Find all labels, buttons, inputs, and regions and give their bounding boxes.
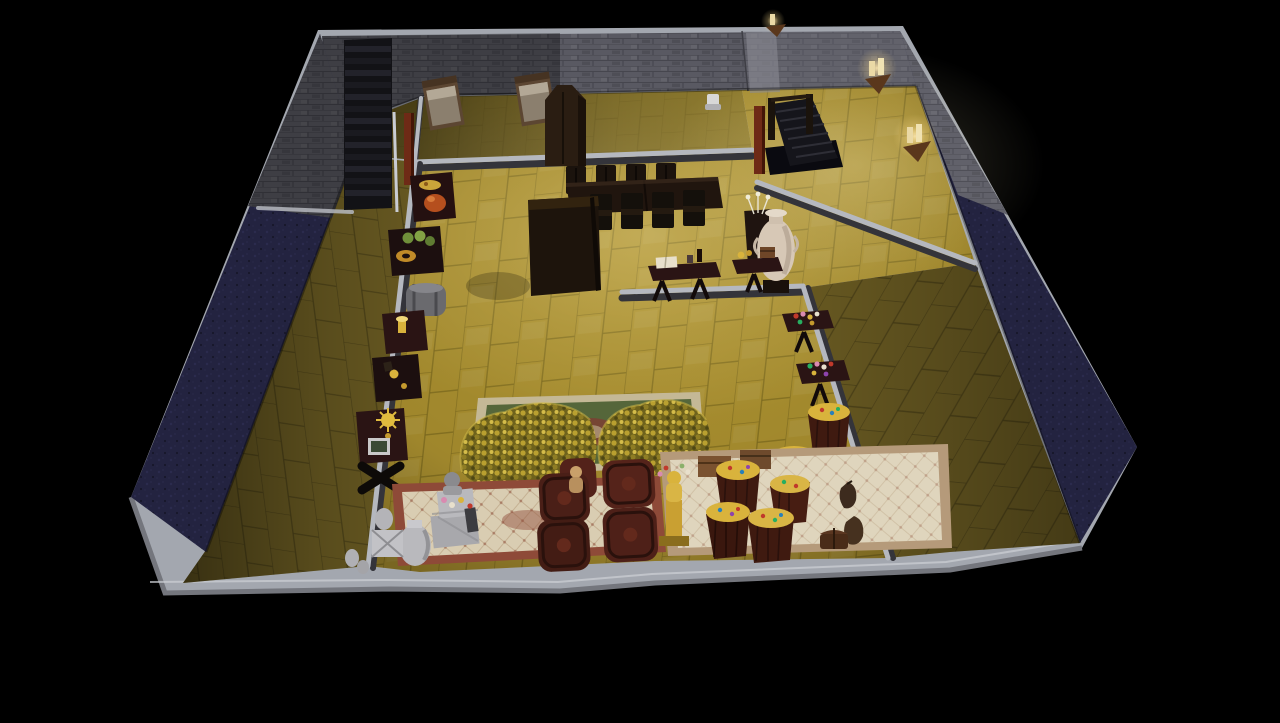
game-viewport <box>0 0 1280 723</box>
bust-shoulders <box>443 486 462 495</box>
candle <box>770 14 775 25</box>
statue-figure-head <box>667 471 681 485</box>
gold-trinket <box>746 250 752 256</box>
wardrobe-side <box>578 95 586 166</box>
cabbage <box>415 231 426 242</box>
gold-barrel <box>706 502 750 559</box>
table-produce[interactable] <box>388 226 444 276</box>
candle <box>907 127 913 143</box>
door-post-shade <box>411 113 414 185</box>
cabbage <box>403 233 414 244</box>
goblet-rim <box>396 316 408 322</box>
candle <box>916 124 922 142</box>
amphora-pedestal <box>763 280 789 293</box>
gold-fill <box>808 403 850 421</box>
tall-cabinet[interactable] <box>528 196 601 296</box>
keg-top <box>409 283 443 293</box>
table-trinkets[interactable] <box>372 354 422 402</box>
door-frame-stairwell[interactable] <box>754 106 765 174</box>
wreath-hole <box>402 254 410 259</box>
gold-trinket <box>738 252 745 259</box>
stairwell-post-shade <box>762 106 765 174</box>
figurine-body <box>569 477 583 493</box>
table-top <box>372 354 422 402</box>
stone-jar <box>345 549 359 567</box>
bust-head <box>444 472 460 488</box>
door-frame-left[interactable] <box>404 113 414 185</box>
newel-post <box>806 94 813 134</box>
toilet-stool[interactable] <box>705 94 721 110</box>
statue-figure-body <box>666 483 682 502</box>
scene-canvas <box>0 0 1280 723</box>
candle <box>869 61 875 76</box>
framed-relic-canvas <box>371 441 387 452</box>
food-platter <box>419 180 441 190</box>
drink-glass <box>687 255 693 263</box>
cabbage <box>425 236 435 246</box>
table-top <box>796 360 850 384</box>
table-sunburst[interactable] <box>356 408 408 464</box>
floor-shadow <box>466 272 530 300</box>
urn-neck <box>407 520 422 528</box>
stone-column-streak <box>746 32 780 93</box>
stool-base <box>705 104 721 110</box>
gold-trinket <box>390 370 399 379</box>
figurine[interactable] <box>569 466 583 493</box>
wardrobe[interactable] <box>545 85 586 166</box>
wine-bottle <box>697 249 702 262</box>
platter-food <box>424 182 428 186</box>
figurine-head <box>570 466 582 478</box>
book-spine <box>665 257 666 268</box>
gold-barrel-divider-1[interactable] <box>808 403 850 453</box>
table-roast[interactable] <box>410 172 456 222</box>
candle <box>878 58 884 75</box>
gem <box>830 411 834 415</box>
gold-trinket <box>401 383 407 389</box>
gem <box>836 407 840 411</box>
table-goblet[interactable] <box>382 310 428 354</box>
roast <box>424 194 446 212</box>
cabinet-body <box>528 196 601 296</box>
mini-chest <box>760 247 775 258</box>
stone-jug <box>375 508 393 530</box>
gem <box>820 408 824 412</box>
statue-column <box>666 500 682 540</box>
gold-barrel <box>748 508 794 563</box>
keg-chest[interactable] <box>406 283 446 316</box>
statue-base <box>659 536 689 546</box>
roast-highlight <box>427 196 435 202</box>
amphora-rim <box>765 209 787 217</box>
stone-jar <box>357 560 369 574</box>
newel-post <box>768 98 775 140</box>
table-top <box>732 257 783 274</box>
staircase-up[interactable] <box>344 38 397 212</box>
